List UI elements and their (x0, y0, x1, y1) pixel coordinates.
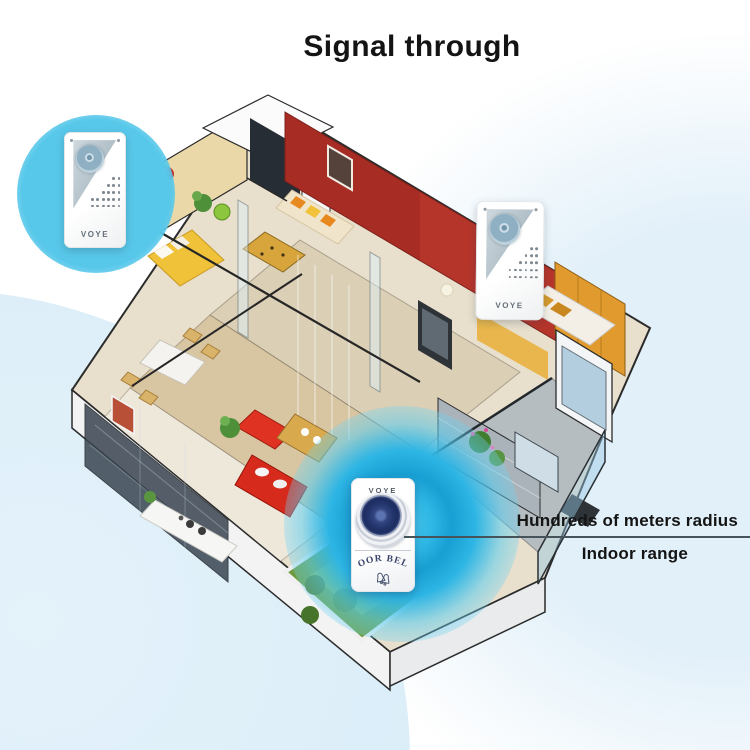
product-infographic: VOYE VOYE VOYE DOOR BELL (0, 0, 750, 750)
screw-dot (483, 208, 486, 211)
door-bell-arched-label: DOOR BELL (351, 552, 410, 570)
doorbell-transmitter: VOYE DOOR BELL (351, 478, 415, 592)
speaker-grille (88, 177, 120, 207)
glass-partition (370, 252, 380, 392)
indoor-range-label: Indoor range (582, 544, 688, 564)
page-title: Signal through (303, 30, 520, 64)
bell-icon (376, 572, 390, 585)
wireless-receiver-top-left: VOYE (64, 132, 126, 248)
range-divider-line (404, 536, 750, 538)
speaker-lens (489, 214, 521, 246)
screw-dot (70, 139, 73, 142)
divider (355, 550, 411, 551)
brand-label: VOYE (64, 230, 126, 239)
brand-label: VOYE (475, 301, 543, 311)
screw-dot (117, 139, 120, 142)
wireless-receiver-right: VOYE (475, 201, 544, 321)
screw-dot (535, 208, 538, 211)
speaker-lens (76, 145, 105, 174)
radius-label: Hundreds of meters radius (517, 511, 738, 531)
armchair-green (214, 204, 230, 220)
glass-partition (238, 200, 248, 338)
doorbell-button (356, 493, 410, 547)
speaker-grille (502, 247, 538, 278)
